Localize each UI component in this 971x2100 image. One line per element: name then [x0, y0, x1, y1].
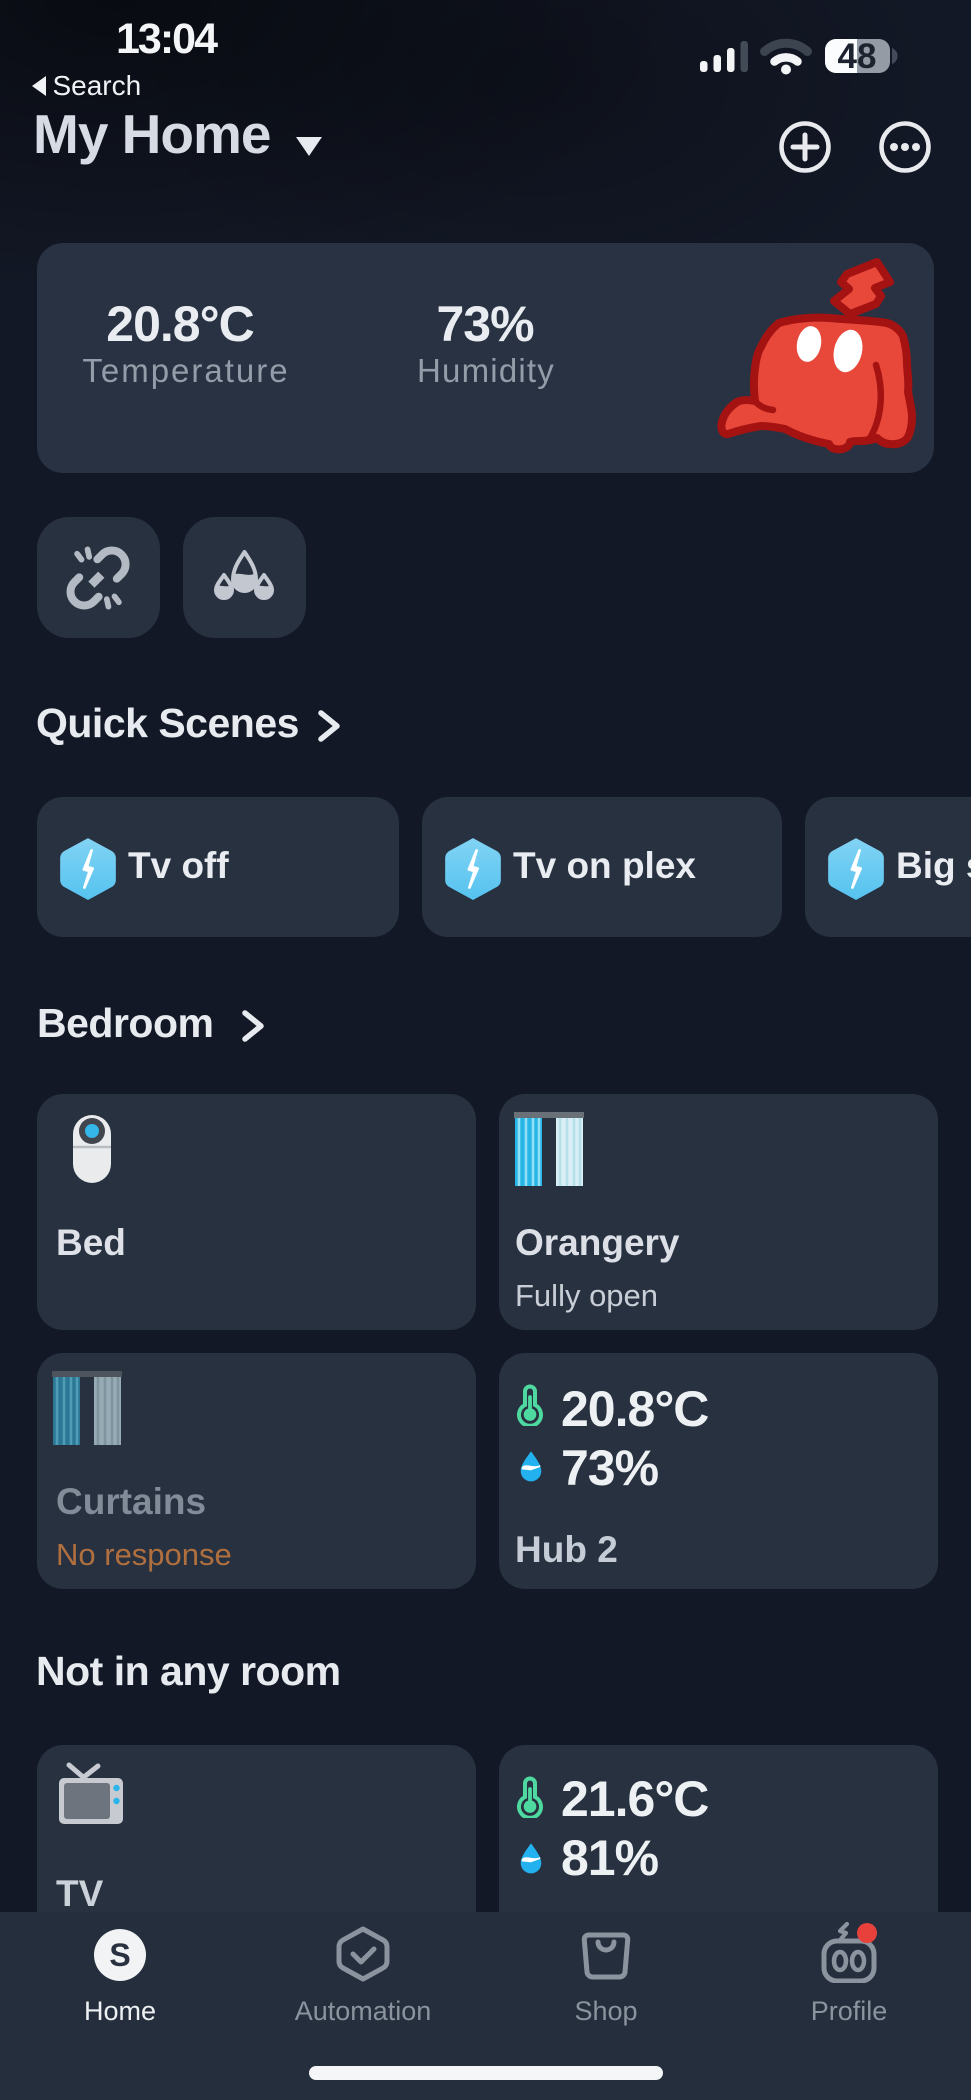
- svg-text:48: 48: [838, 37, 877, 76]
